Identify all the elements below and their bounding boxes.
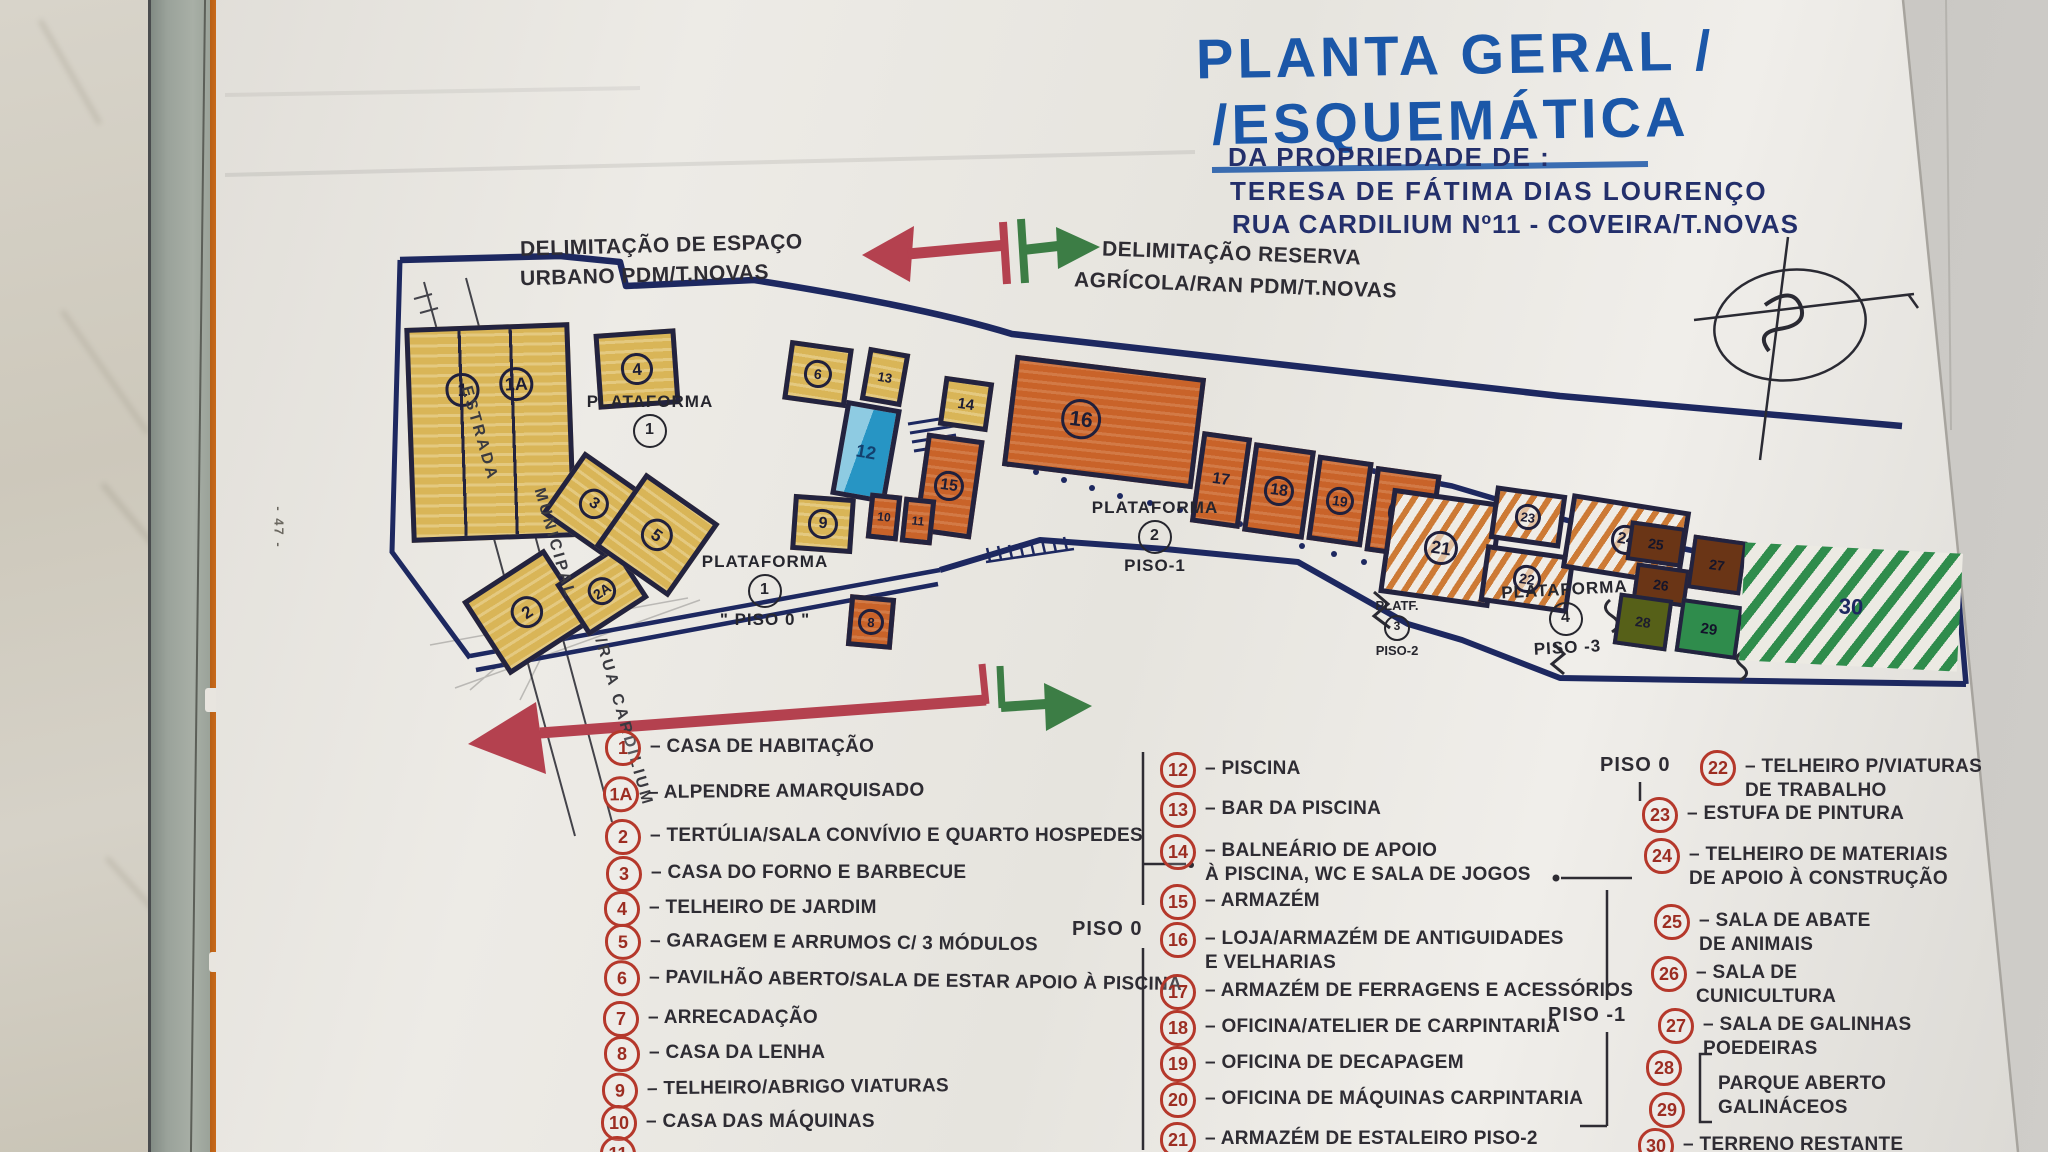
paper-crease [225, 152, 1195, 175]
legend-text: – OFICINA DE DECAPAGEM [1205, 1051, 1464, 1075]
building-label: 10 [877, 510, 892, 523]
legend-item-15: 15– ARMAZÉM [1160, 884, 1320, 920]
piso-label-mid: PISO 0 [1072, 918, 1142, 941]
legend-text: – SALA DE [1696, 961, 1836, 985]
platform-label-1-piso0: PLATAFORMA 1 " PISO 0 " [695, 552, 835, 630]
legend-item-8: 8– CASA DA LENHA [604, 1036, 825, 1072]
building-29: 29 [1675, 598, 1744, 660]
legend-item-3: 3– CASA DO FORNO E BARBECUE [606, 856, 966, 892]
photographed-site-plan: PLANTA GERAL / /ESQUEMÁTICA DA PROPRIEDA… [0, 0, 2048, 1152]
legend-text: – BALNEÁRIO DE APOIO [1205, 839, 1531, 863]
legend-number: 4 [604, 891, 640, 927]
paper-crease [225, 88, 640, 95]
legend-text: – PAVILHÃO ABERTO/SALA DE ESTAR APOIO À … [649, 966, 1182, 997]
building-label: 5 [635, 513, 680, 558]
legend-number: 12 [1160, 752, 1196, 788]
building-9: 9 [790, 494, 856, 554]
building-11: 11 [900, 496, 937, 545]
legend-number: 8 [604, 1036, 640, 1072]
legend-number: 1 [605, 730, 641, 766]
building-label: 18 [1262, 474, 1296, 508]
building-16: 16 [1002, 355, 1206, 490]
legend-text: – OFICINA/ATELIER DE CARPINTARIA [1205, 1015, 1560, 1039]
legend-text: – TERTÚLIA/SALA CONVÍVIO E QUARTO HOSPED… [650, 824, 1143, 848]
platform-piso: " PISO 0 " [720, 610, 810, 630]
legend-number: 25 [1654, 904, 1690, 940]
title-owner-intro: DA PROPRIEDADE DE : [1228, 142, 1550, 173]
building-label: 27 [1708, 557, 1725, 573]
platform-name: PLATAFORMA [702, 552, 828, 572]
legend-item-12: 12– PISCINA [1160, 752, 1301, 788]
building-label: 16 [1059, 397, 1104, 442]
platform-number: 2 [1138, 520, 1172, 554]
legend-item-30: 30– TERRENO RESTANTE [1638, 1128, 1903, 1152]
building-label: 2A [583, 572, 622, 611]
legend-text: – ESTUFA DE PINTURA [1687, 802, 1904, 826]
legend-number: 23 [1642, 797, 1678, 833]
legend-item-26: 26– SALA DECUNICULTURA [1651, 956, 1836, 1009]
building-14: 14 [938, 376, 994, 432]
red-arrow-top [862, 222, 1007, 284]
platform-name: PLATAFORMA [587, 392, 713, 412]
building-label: 8 [857, 608, 885, 636]
legend-number: 16 [1160, 922, 1196, 958]
legend-text-28-29: PARQUE ABERTOGALINÁCEOS [1718, 1072, 1886, 1120]
legend-text-line2: GALINÁCEOS [1718, 1096, 1886, 1120]
legend-text: – SALA DE ABATE [1699, 909, 1871, 933]
legend-text: – CASA DE HABITAÇÃO [650, 735, 874, 759]
legend-item-5: 5– GARAGEM E ARRUMOS C/ 3 MÓDULOS [605, 924, 1038, 965]
legend-text: – CASA DA LENHA [649, 1041, 825, 1065]
legend-item-14: 14– BALNEÁRIO DE APOIOÀ PISCINA, WC E SA… [1160, 834, 1531, 887]
building-label: 21 [1422, 529, 1460, 567]
building-label: 23 [1513, 502, 1542, 531]
legend-item-22: 22– TELHEIRO P/VIATURASDE TRABALHO [1700, 750, 1982, 803]
legend-item-16: 16– LOJA/ARMAZÉM DE ANTIGUIDADESE VELHAR… [1160, 922, 1564, 975]
platform-piso: PISO -3 [1533, 636, 1601, 660]
building-label: 17 [1211, 471, 1231, 489]
legend-number: 17 [1160, 974, 1196, 1010]
legend-text-line2: POEDEIRAS [1703, 1037, 1911, 1061]
legend-text: – LOJA/ARMAZÉM DE ANTIGUIDADES [1205, 927, 1564, 951]
legend-number: 30 [1638, 1128, 1674, 1152]
building-label: 3 [573, 483, 615, 525]
legend-number: 24 [1644, 838, 1680, 874]
legend-text: – OFICINA DE MÁQUINAS CARPINTARIA [1205, 1087, 1583, 1111]
legend-item-18: 18– OFICINA/ATELIER DE CARPINTARIA [1160, 1010, 1560, 1046]
legend-text: – CASA DO FORNO E BARBECUE [651, 861, 966, 885]
legend-number: 15 [1160, 884, 1196, 920]
building-label: 11 [911, 514, 925, 527]
platform-name: PLATAFORMA [1092, 498, 1218, 518]
building-label: 13 [877, 369, 894, 384]
legend-item-9: 9– TELHEIRO/ABRIGO VIATURAS [602, 1069, 949, 1109]
legend-text-line2: DE ANIMAIS [1699, 933, 1871, 957]
margin-page-number: - 47 - [272, 506, 287, 548]
platform-label-3: PLATF. 3 PISO-2 [1352, 598, 1442, 658]
building-label: 1A [499, 366, 534, 401]
bracket-dot [1553, 875, 1560, 882]
legend-text: – ARRECADAÇÃO [648, 1006, 818, 1030]
legend-text: – CASA DAS MÁQUINAS [646, 1110, 875, 1134]
page-title-line1: PLANTA GERAL / [1195, 17, 1715, 91]
legend-text: – TELHEIRO P/VIATURAS [1745, 755, 1982, 779]
legend-item-24: 24– TELHEIRO DE MATERIAISDE APOIO À CONS… [1644, 838, 1948, 891]
legend-item-7: 7– ARRECADAÇÃO [603, 1001, 818, 1037]
legend-number: 2 [605, 819, 641, 855]
platform-label-1: PLATAFORMA 1 [585, 392, 715, 450]
building-19: 19 [1306, 455, 1373, 548]
legend-item-2: 2– TERTÚLIA/SALA CONVÍVIO E QUARTO HOSPE… [605, 819, 1143, 855]
legend-item-29: 29 [1649, 1092, 1685, 1128]
building-23: 23 [1489, 485, 1568, 548]
legend-item-25: 25– SALA DE ABATEDE ANIMAIS [1654, 904, 1871, 957]
platform-name: PLATF. [1375, 598, 1418, 613]
building-label: 29 [1700, 620, 1719, 637]
platform-label-2: PLATAFORMA 2 PISO-1 [1080, 498, 1230, 576]
legend-number: 5 [605, 924, 641, 960]
building-6: 6 [782, 340, 854, 408]
legend-number: 13 [1160, 792, 1196, 828]
building-label: 2 [505, 590, 549, 634]
legend-number: 27 [1658, 1008, 1694, 1044]
piso-label-right-mid: PISO -1 [1548, 1004, 1626, 1027]
legend-item-28: 28 [1646, 1050, 1682, 1086]
terrain-30: 30 [1739, 542, 1963, 671]
platform-piso: PISO-2 [1376, 643, 1419, 658]
legend-text: – TELHEIRO DE JARDIM [649, 896, 877, 920]
building-label: 9 [807, 508, 839, 540]
road-ticks [414, 294, 438, 313]
piso-label-right-top: PISO 0 [1600, 754, 1670, 777]
building-label: 26 [1652, 577, 1669, 593]
building-25: 25 [1625, 520, 1686, 567]
legend-item-1: 1– CASA DE HABITAÇÃO [605, 730, 874, 766]
legend-text: – TERRENO RESTANTE [1683, 1133, 1903, 1152]
legend-text: – BAR DA PISCINA [1205, 797, 1381, 821]
legend-item-21: 21– ARMAZÉM DE ESTALEIRO PISO-2 [1160, 1122, 1538, 1152]
legend-item-20: 20– OFICINA DE MÁQUINAS CARPINTARIA [1160, 1082, 1583, 1118]
legend-text: – TELHEIRO/ABRIGO VIATURAS [647, 1074, 949, 1101]
legend-item-27: 27– SALA DE GALINHASPOEDEIRAS [1658, 1008, 1911, 1061]
legend-text: – ARMAZÉM [1205, 889, 1320, 913]
building-label: 14 [957, 395, 976, 412]
legend-number: 19 [1160, 1046, 1196, 1082]
building-18: 18 [1242, 442, 1316, 540]
building-label: 6 [802, 358, 834, 390]
legend-number: 1A [603, 776, 639, 812]
green-arrow-bottom [1000, 666, 1092, 731]
legend-number: 11 [600, 1136, 636, 1152]
legend-number: 26 [1651, 956, 1687, 992]
legend-text: – TELHEIRO DE MATERIAIS [1689, 843, 1948, 867]
title-owner-name: TERESA DE FÁTIMA DIAS LOURENÇO [1230, 176, 1768, 207]
building-label: 28 [1634, 614, 1651, 630]
building-label: 12 [855, 441, 878, 462]
legend-number: 7 [603, 1001, 639, 1037]
platform-number: 1 [633, 414, 667, 448]
platform-label-4: PLATAFORMA 4 PISO -3 [1494, 576, 1638, 661]
building-10: 10 [866, 492, 903, 541]
sleeve-edge-line [1946, 0, 1951, 430]
legend-number: 6 [604, 960, 640, 996]
legend-text-line2: E VELHARIAS [1205, 951, 1564, 975]
platform-number: 3 [1384, 615, 1410, 641]
building-label: 4 [620, 352, 654, 386]
legend-number: 21 [1160, 1122, 1196, 1152]
legend-item-13: 13– BAR DA PISCINA [1160, 792, 1381, 828]
legend-text: – PISCINA [1205, 757, 1301, 781]
legend-text: PARQUE ABERTO [1718, 1072, 1886, 1096]
legend-item-4: 4– TELHEIRO DE JARDIM [604, 891, 877, 927]
legend-number: 20 [1160, 1082, 1196, 1118]
legend-number: 29 [1649, 1092, 1685, 1128]
legend-item-11: 11 [600, 1136, 645, 1152]
building-label: 19 [1324, 485, 1356, 517]
platform-piso: PISO-1 [1124, 556, 1186, 576]
platform-number: 1 [748, 574, 782, 608]
legend-text-line2: CUNICULTURA [1696, 985, 1836, 1009]
legend-text: – ARMAZÉM DE FERRAGENS E ACESSÓRIOS [1205, 979, 1633, 1003]
building-label: 15 [932, 469, 966, 503]
legend-text: – GARAGEM E ARRUMOS C/ 3 MÓDULOS [650, 929, 1038, 957]
legend-number: 14 [1160, 834, 1196, 870]
legend-text: – ALPENDRE AMARQUISADO [648, 779, 925, 805]
legend-text: – SALA DE GALINHAS [1703, 1013, 1911, 1037]
legend-text-line2: DE APOIO À CONSTRUÇÃO [1689, 867, 1948, 891]
title-address: RUA CARDILIUM Nº11 - COVEIRA/T.NOVAS [1232, 209, 1799, 240]
legend-number: 22 [1700, 750, 1736, 786]
legend-number: 9 [602, 1072, 638, 1108]
legend-item-1a: 1A– ALPENDRE AMARQUISADO [603, 774, 925, 813]
legend-number: 28 [1646, 1050, 1682, 1086]
platform-number: 4 [1548, 601, 1584, 637]
building-label: 30 [1838, 595, 1864, 618]
building-27: 27 [1687, 535, 1748, 596]
legend-text: – ARMAZÉM DE ESTALEIRO PISO-2 [1205, 1127, 1538, 1151]
building-label: 25 [1647, 536, 1664, 552]
legend-number: 3 [606, 856, 642, 892]
legend-number: 18 [1160, 1010, 1196, 1046]
legend-item-23: 23– ESTUFA DE PINTURA [1642, 797, 1904, 833]
building-8: 8 [846, 594, 896, 650]
legend-item-19: 19– OFICINA DE DECAPAGEM [1160, 1046, 1464, 1082]
